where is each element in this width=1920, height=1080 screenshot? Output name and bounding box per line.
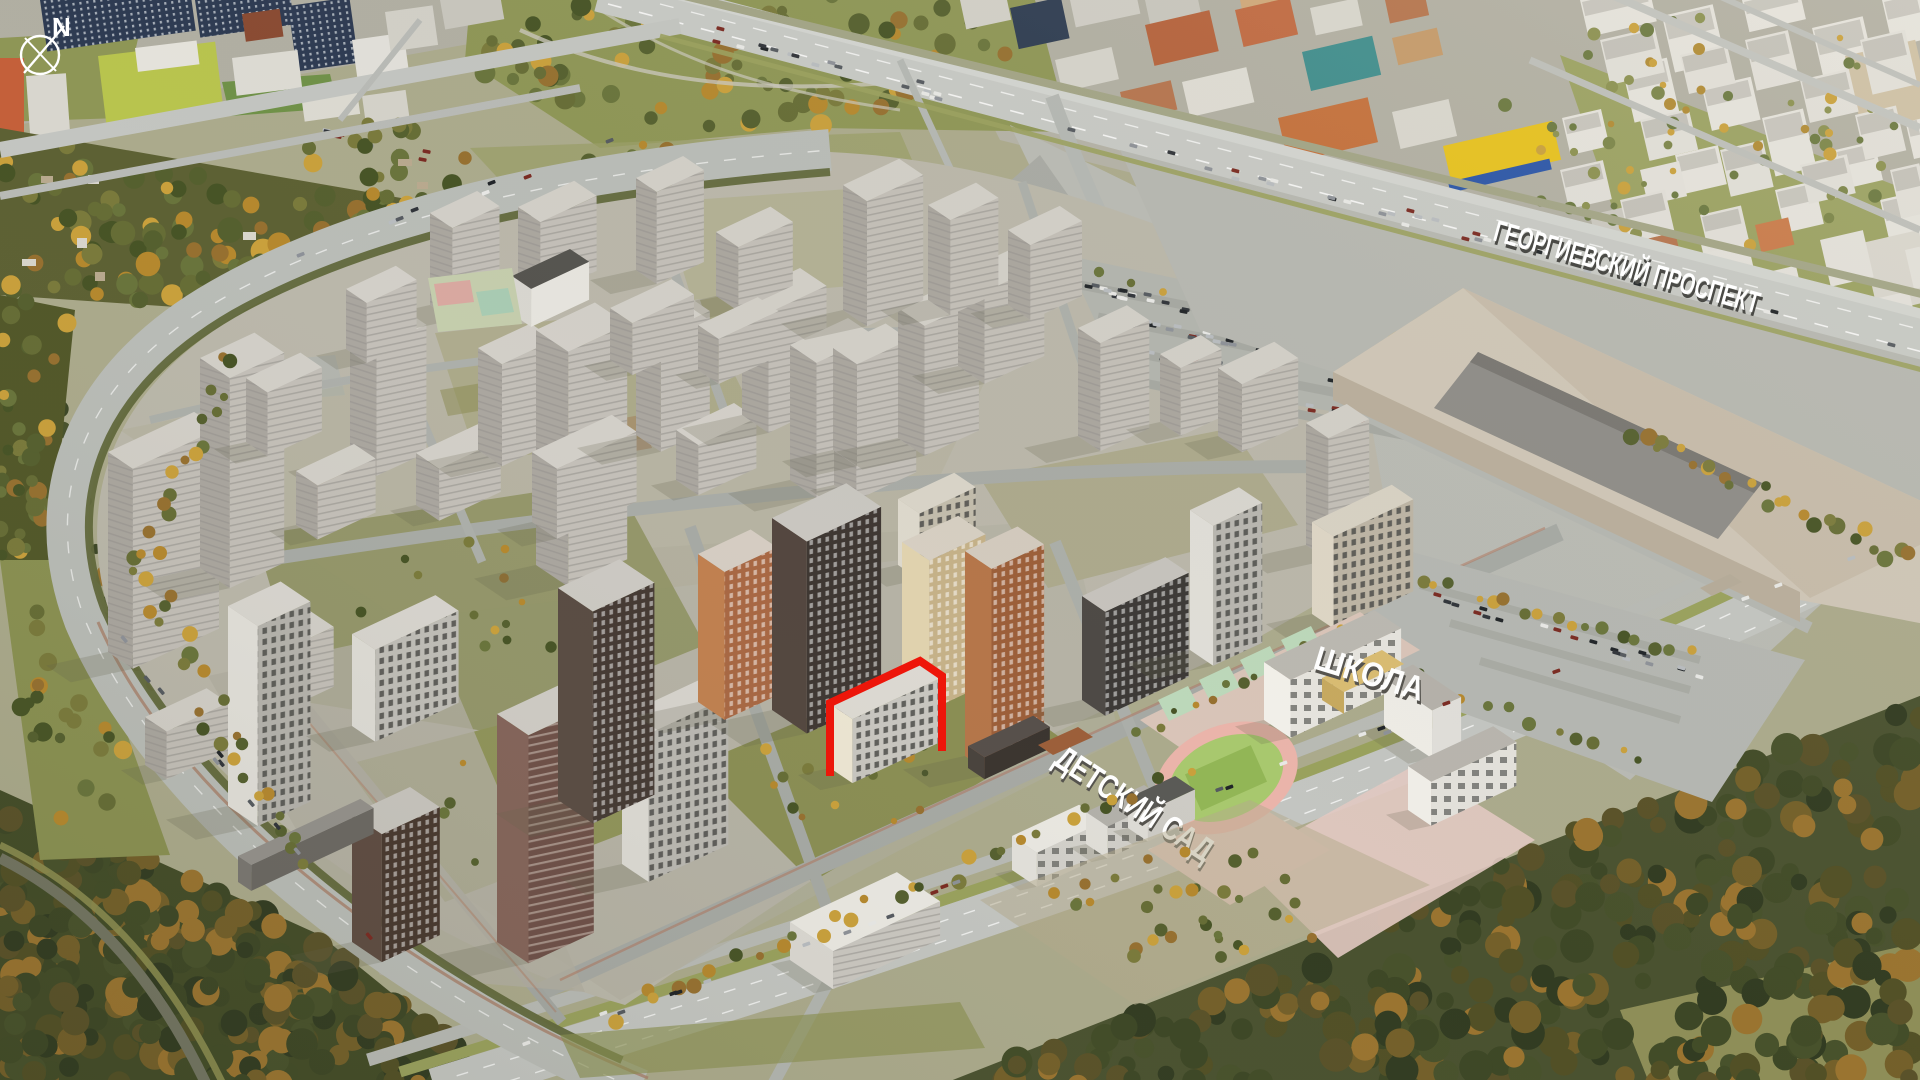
- svg-text:N: N: [52, 12, 71, 42]
